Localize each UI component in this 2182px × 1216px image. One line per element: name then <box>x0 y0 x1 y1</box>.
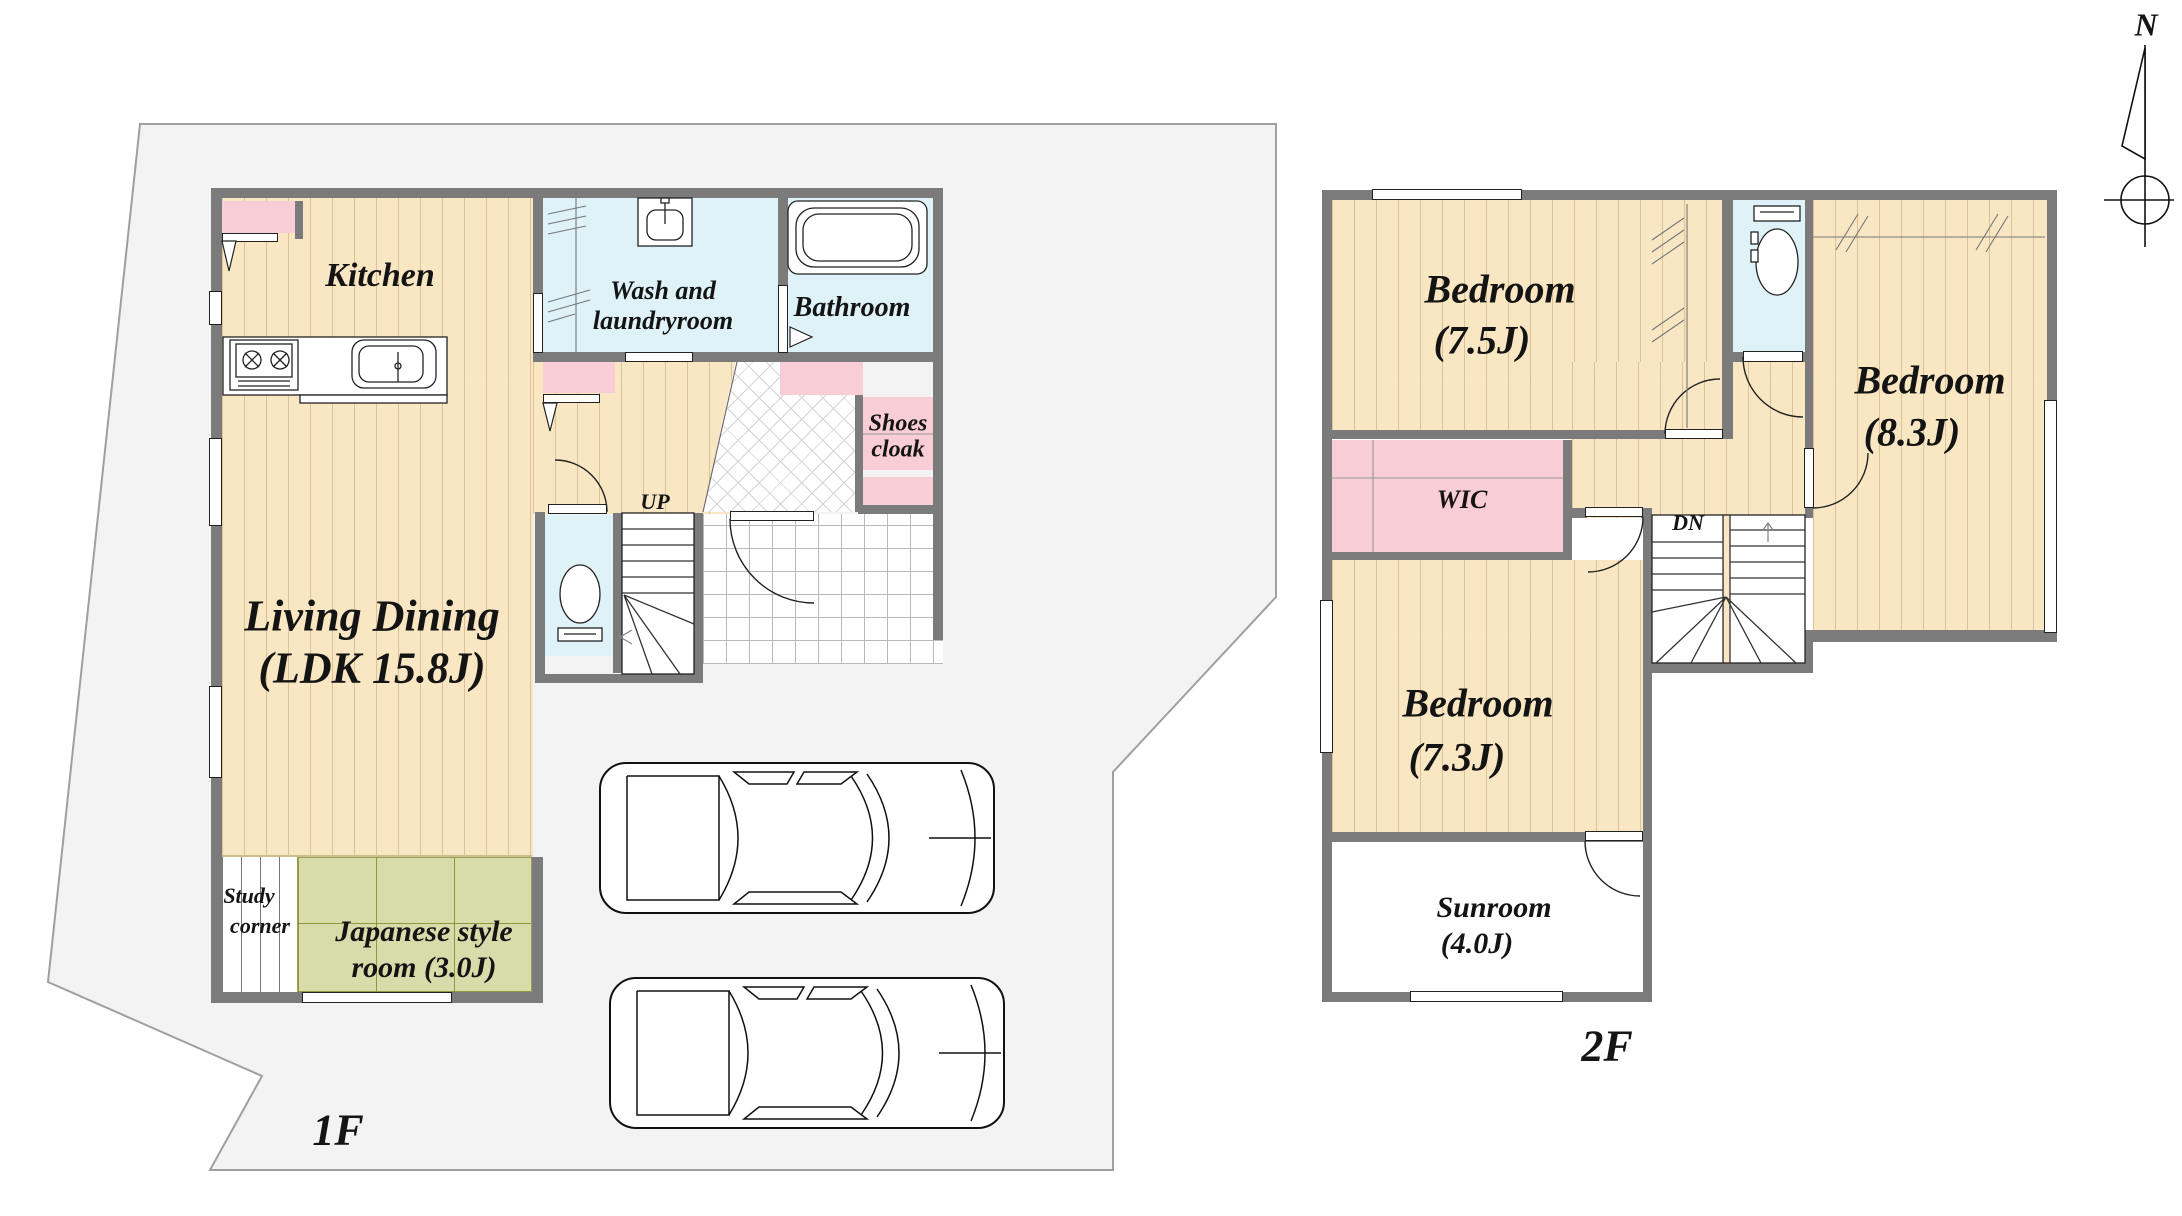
floor2-label: 2F <box>1581 1021 1632 1072</box>
bedroom73-door-arc <box>1588 517 1643 572</box>
entrance-door-arc <box>730 519 814 603</box>
kitchen-label: Kitchen <box>325 257 435 295</box>
closet-marks <box>548 198 2045 552</box>
washroom-label-1: Wash and <box>610 276 716 306</box>
toilet1f-door-arc <box>555 460 607 512</box>
study-corner-label-2: corner <box>230 913 290 939</box>
toilet2f-icon <box>1751 206 1800 295</box>
stairs-1f-treads-icon <box>620 513 694 674</box>
hall-closet-door-icon <box>543 403 557 431</box>
bathtub-icon <box>788 201 927 274</box>
floor1-label: 1F <box>312 1105 363 1156</box>
car-icon <box>600 763 994 913</box>
japanese-room-label-2: room (3.0J) <box>352 951 497 985</box>
north-label: N <box>2134 7 2157 44</box>
study-corner-label-1: Study <box>223 883 274 909</box>
sunroom-door-arc <box>1585 841 1640 896</box>
sunroom-label-2: (4.0J) <box>1441 927 1513 961</box>
car2-icon <box>610 978 1004 1128</box>
fridge-door-icon <box>222 241 236 271</box>
bedroom83-label-2: (8.3J) <box>1864 409 1961 456</box>
compass-icon <box>2104 45 2174 247</box>
bedroom83-door-arc <box>1813 453 1868 508</box>
bedroom75-label-2: (7.5J) <box>1434 317 1531 364</box>
japanese-room-label-1: Japanese style <box>335 915 512 949</box>
living-dining-label-1: Living Dining <box>244 591 500 642</box>
shoes-cloak-label-2: cloak <box>871 437 924 464</box>
toilet1f-icon <box>558 565 602 641</box>
bedroom73-label-1: Bedroom <box>1402 680 1553 727</box>
bathroom-door-icon <box>790 327 812 347</box>
shoes-cloak-label-1: Shoes <box>869 411 928 438</box>
bedroom75-label-1: Bedroom <box>1424 266 1575 313</box>
stairs-2f-treads-icon <box>1652 515 1805 663</box>
bathroom-label: Bathroom <box>794 292 911 324</box>
living-dining-label-2: (LDK 15.8J) <box>258 643 485 694</box>
washbasin-icon <box>638 198 692 246</box>
wic-label: WIC <box>1437 485 1488 515</box>
toilet2f-door-arc <box>1743 357 1803 417</box>
kitchen-counter-icon <box>223 337 447 403</box>
stairs-up-label: UP <box>640 489 669 515</box>
sunroom-label-1: Sunroom <box>1436 891 1551 925</box>
bedroom73-label-2: (7.3J) <box>1409 734 1506 781</box>
bedroom75-door-arc <box>1665 379 1720 434</box>
washroom-label-2: laundryroom <box>593 306 733 336</box>
bedroom83-label-1: Bedroom <box>1854 357 2005 404</box>
floor-plan-page: Kitchen Wash and laundryroom Bathroom Sh… <box>0 0 2182 1216</box>
stairs-dn-label: DN <box>1672 510 1704 536</box>
